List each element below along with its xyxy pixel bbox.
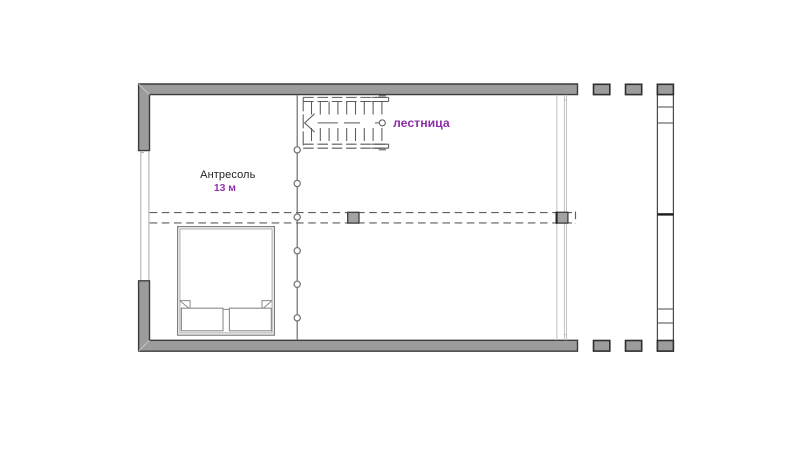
svg-text:Антресоль: Антресоль — [200, 169, 255, 181]
svg-text:лестница: лестница — [393, 116, 450, 130]
svg-text:13 м: 13 м — [214, 183, 236, 194]
